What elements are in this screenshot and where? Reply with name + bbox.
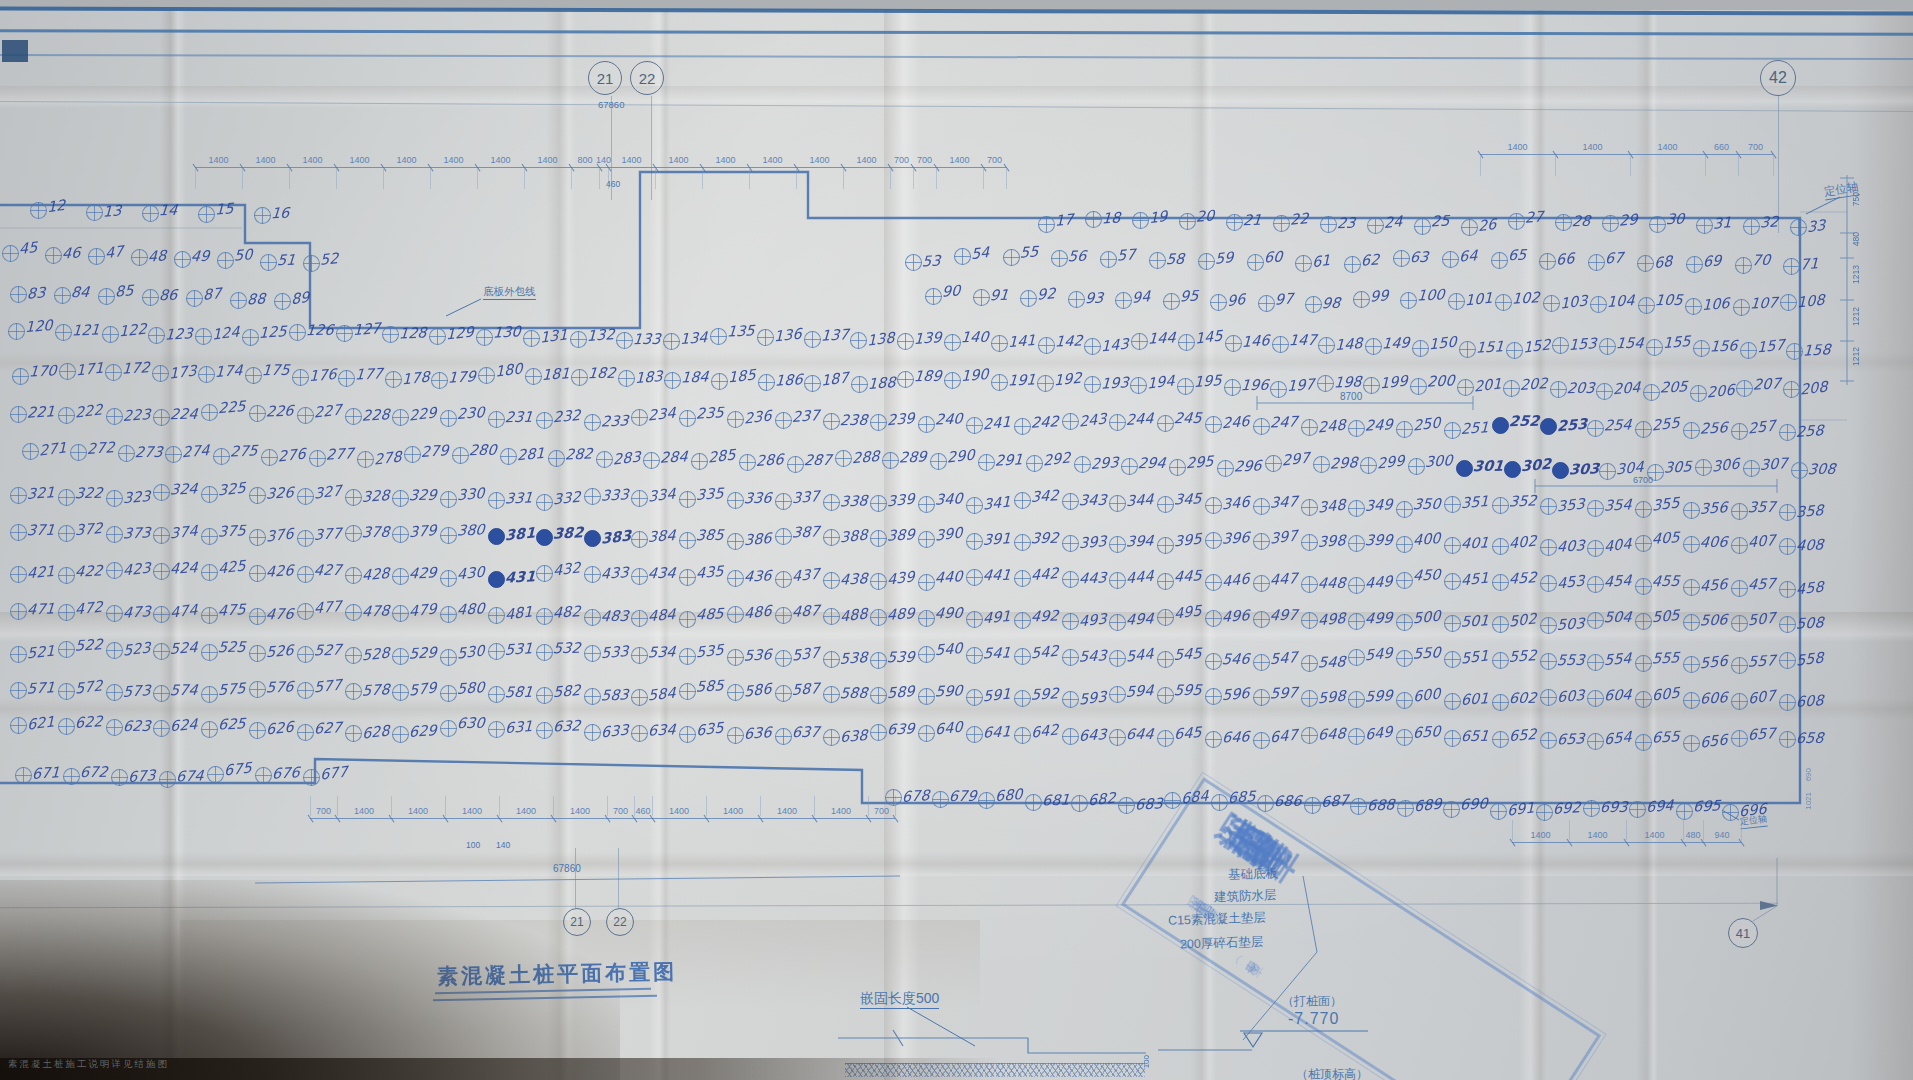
pile-number: 296: [1233, 457, 1262, 474]
pile-symbol: [297, 566, 314, 583]
pile-symbol: [1635, 578, 1652, 595]
pile-number: 331: [504, 490, 533, 507]
pile-symbol: [392, 726, 409, 743]
pile-number: 645: [1174, 724, 1202, 742]
pile-number: 494: [1126, 610, 1154, 628]
pile-symbol: [966, 569, 983, 586]
pile-number: 671: [32, 764, 60, 782]
pile-number: 332: [553, 488, 581, 507]
pile-symbol: [536, 529, 553, 546]
pile-number: 155: [1663, 333, 1691, 351]
pile-symbol: [584, 724, 601, 741]
pile-symbol: [345, 604, 362, 621]
pile-number: 158: [1803, 341, 1831, 359]
pile-symbol: [106, 526, 123, 543]
pile-symbol: [15, 767, 32, 784]
pile-symbol: [835, 450, 852, 467]
dim-value: 1400: [1582, 142, 1602, 152]
pile-number: 386: [744, 530, 772, 548]
dim-value: 940: [1714, 830, 1729, 840]
sub-dim-140: 140: [496, 840, 510, 850]
pile-level-value: -7.770: [1288, 1010, 1339, 1028]
pile-symbol: [1635, 421, 1652, 438]
pile-number: 601: [1461, 690, 1489, 708]
pile-symbol: [1074, 456, 1091, 473]
pile-number: 434: [648, 564, 677, 581]
pile-symbol: [1253, 575, 1270, 592]
pile-symbol: [201, 528, 218, 545]
pile-number: 335: [696, 485, 724, 503]
pile-number: 247: [1269, 413, 1298, 430]
pile-number: 71: [1800, 255, 1819, 273]
pile-number: 96: [1227, 291, 1246, 309]
pile-number: 154: [1615, 335, 1644, 352]
pile-number: 384: [648, 527, 676, 545]
pile-number: 129: [446, 323, 474, 342]
pile-number: 549: [1365, 645, 1393, 664]
dim-value: 480: [1685, 830, 1700, 840]
pile-number: 289: [899, 448, 928, 465]
layer-note-4: 200厚碎石垫层: [1180, 934, 1264, 954]
pile-number: 229: [409, 404, 437, 423]
pile-number: 375: [218, 522, 246, 540]
pile-number: 17: [1055, 211, 1073, 229]
pile-number: 640: [935, 718, 963, 737]
sub-dim-100: 100: [466, 840, 480, 850]
pile-number: 232: [553, 407, 581, 425]
pile-number: 127: [353, 320, 381, 338]
pile-symbol: [392, 684, 409, 701]
pile-number: 495: [1174, 602, 1202, 621]
layer-note-3: C15素混凝土垫层: [1168, 909, 1266, 929]
pile-symbol: [1779, 652, 1796, 669]
pile-number: 248: [1318, 416, 1346, 435]
pile-symbol: [70, 444, 87, 461]
pile-number: 171: [76, 359, 104, 378]
pile-number: 148: [1335, 335, 1363, 353]
axis-bubble-21: 21: [588, 61, 622, 95]
pile-symbol: [58, 567, 75, 584]
pile-number: 673: [128, 767, 156, 785]
pile-symbol: [1205, 610, 1222, 627]
pile-number: 634: [648, 721, 676, 739]
pile-number: 226: [265, 403, 294, 420]
anchor-length-note: 嵌固长度500: [860, 990, 939, 1009]
pile-symbol: [536, 687, 553, 704]
dim-value: 1400: [570, 806, 590, 816]
pile-number: 181: [541, 365, 569, 383]
pile-number: 126: [305, 322, 334, 339]
pile-symbol: [289, 324, 306, 341]
pile-number: 683: [1134, 795, 1162, 813]
pile-number: 526: [266, 641, 294, 659]
pile-number: 302: [1521, 455, 1551, 474]
pile-symbol: [525, 368, 542, 385]
pile-symbol: [105, 364, 122, 381]
pile-symbol: [1444, 615, 1461, 632]
pile-number: 692: [1553, 799, 1581, 817]
pile-number: 227: [314, 401, 342, 420]
pile-symbol: [1448, 293, 1465, 310]
dim-value: 1400: [856, 155, 876, 165]
pile-number: 635: [696, 719, 724, 738]
pile-number: 357: [1747, 499, 1776, 516]
pile-number: 233: [600, 412, 629, 429]
pile-number: 587: [792, 680, 820, 698]
pile-number: 471: [26, 601, 55, 618]
pile-number: 54: [971, 244, 990, 262]
pile-number: 681: [1041, 791, 1070, 808]
pile-number: 26: [1478, 215, 1497, 233]
pile-symbol: [1638, 297, 1655, 314]
pile-symbol: [1583, 800, 1600, 817]
pile-symbol: [58, 525, 75, 542]
pile-number: 90: [942, 283, 961, 300]
pile-number: 352: [1508, 493, 1537, 510]
pile-symbol: [1353, 291, 1370, 308]
pile-number: 581: [504, 683, 533, 700]
pile-number: 107: [1749, 295, 1778, 312]
pile-symbol: [1731, 615, 1748, 632]
pile-number: 539: [887, 648, 916, 665]
pile-symbol: [1683, 502, 1700, 519]
pile-symbol: [1414, 218, 1431, 235]
pile-number: 189: [914, 368, 943, 385]
pile-symbol: [1683, 692, 1700, 709]
pile-number: 195: [1194, 372, 1222, 390]
dim-ext-line: [524, 169, 525, 189]
pile-symbol: [1062, 571, 1079, 588]
pile-number: 87: [203, 285, 221, 303]
pile-symbol: [1731, 423, 1748, 440]
pile-number: 524: [170, 639, 198, 657]
pile-number: 389: [887, 527, 915, 545]
pile-symbol: [102, 326, 119, 343]
pile-number: 185: [728, 366, 756, 385]
pile-number: 491: [983, 608, 1011, 626]
pile-number: 66: [1556, 250, 1574, 268]
pile-number: 557: [1747, 653, 1775, 671]
pile-number: 657: [1748, 725, 1776, 743]
pile-number: 385: [695, 527, 724, 544]
pile-number: 12: [47, 197, 66, 215]
pile-symbol: [1062, 691, 1079, 708]
dim-8700-label: 8700: [1340, 391, 1362, 402]
pile-number: 101: [1465, 290, 1493, 309]
pile-symbol: [727, 492, 744, 509]
pile-number: 646: [1221, 728, 1250, 745]
pile-symbol: [1444, 693, 1461, 710]
pile-number: 574: [170, 682, 199, 699]
pile-symbol: [1014, 534, 1031, 551]
pile-number: 231: [504, 409, 533, 426]
pile-symbol: [153, 643, 170, 660]
pile-symbol: [1457, 379, 1474, 396]
pile-number: 288: [852, 448, 880, 466]
pile-number: 594: [1126, 682, 1154, 700]
pile-number: 402: [1509, 533, 1537, 552]
pile-symbol: [1363, 377, 1380, 394]
pile-symbol: [106, 684, 123, 701]
pile-symbol: [1736, 380, 1753, 397]
pile-number: 224: [170, 406, 199, 423]
pile-number: 290: [947, 446, 975, 465]
pile-symbol: [1131, 333, 1148, 350]
pile-number: 687: [1320, 792, 1348, 810]
pile-symbol: [1779, 504, 1796, 521]
pile-symbol: [596, 451, 613, 468]
pile-symbol: [10, 406, 27, 423]
pile-symbol: [918, 725, 935, 742]
pile-symbol: [679, 491, 696, 508]
pile-number: 234: [648, 404, 676, 423]
pile-number: 249: [1365, 416, 1393, 434]
pile-number: 146: [1242, 332, 1270, 350]
pile-number: 422: [74, 563, 103, 580]
pile-number: 648: [1317, 725, 1345, 743]
pile-number: 552: [1509, 647, 1537, 665]
pile-number: 88: [247, 290, 266, 307]
pile-number: 600: [1413, 685, 1441, 704]
dim-value-vertical: 1212: [1851, 307, 1861, 326]
pile-symbol: [118, 445, 135, 462]
pile-symbol: [631, 409, 648, 426]
pile-number: 251: [1461, 419, 1489, 437]
dim-value-vertical: 1212: [1851, 347, 1861, 366]
pile-number: 128: [399, 325, 428, 342]
pile-symbol: [1683, 614, 1700, 631]
pile-number: 157: [1757, 336, 1785, 355]
pile-number: 637: [791, 723, 820, 740]
pile-symbol: [1272, 336, 1289, 353]
pile-number: 592: [1030, 686, 1058, 704]
pile-number: 340: [935, 491, 963, 509]
pile-number: 685: [1227, 788, 1255, 806]
pile-symbol: [1779, 694, 1796, 711]
pile-symbol: [1014, 612, 1031, 629]
pile-number: 490: [934, 605, 963, 622]
pile-number: 532: [552, 640, 581, 657]
pile-symbol: [1301, 690, 1318, 707]
pile-number: 280: [468, 442, 497, 459]
pile-number: 436: [743, 567, 772, 584]
dim-value: 1400: [302, 155, 322, 165]
pile-symbol: [385, 371, 402, 388]
pile-number: 675: [224, 759, 252, 778]
pile-number: 145: [1195, 327, 1223, 346]
dim-ext-line: [796, 169, 797, 189]
dim-value: 1400: [516, 806, 536, 816]
pile-number: 186: [774, 371, 802, 389]
pile-number: 180: [495, 360, 523, 379]
pile-number: 603: [1557, 686, 1585, 704]
pile-symbol: [978, 454, 995, 471]
pile-symbol: [1779, 731, 1796, 748]
pile-number: 501: [1461, 612, 1489, 630]
pile-number: 529: [409, 644, 437, 662]
dim-value-vertical: 690: [1804, 768, 1813, 781]
pile-symbol: [1540, 732, 1557, 749]
pile-symbol: [198, 206, 215, 223]
pile-symbol: [1038, 337, 1055, 354]
pile-number: 324: [170, 481, 199, 498]
pile-number: 536: [744, 646, 772, 664]
pile-number: 405: [1652, 529, 1680, 547]
pile-number: 508: [1795, 614, 1823, 632]
pile-number: 642: [1031, 721, 1059, 740]
pile-number: 686: [1273, 793, 1302, 810]
pile-symbol: [930, 453, 947, 470]
dim-value: 700: [894, 155, 909, 165]
pile-number: 258: [1795, 422, 1823, 440]
pile-symbol: [1014, 727, 1031, 744]
pile-number: 381: [505, 524, 535, 543]
pile-symbol: [1367, 217, 1384, 234]
pile-number: 178: [402, 368, 430, 387]
pile-symbol: [1635, 501, 1652, 518]
axis-bubble-21: 21: [563, 908, 591, 936]
dim-value: 1400: [777, 806, 797, 816]
pile-symbol: [1596, 383, 1613, 400]
dim-value: 1400: [1507, 142, 1527, 152]
pile-symbol: [1068, 291, 1085, 308]
pile-number: 623: [122, 718, 151, 735]
pile-number: 550: [1413, 645, 1441, 663]
pile-number: 108: [1797, 292, 1825, 311]
pile-symbol: [488, 528, 505, 545]
pile-number: 486: [744, 603, 772, 622]
pile-symbol: [213, 448, 230, 465]
drawing-title: 素混凝土桩平面布置图: [437, 957, 678, 990]
pile-number: 279: [421, 442, 449, 460]
dim-ext-line: [337, 796, 338, 816]
pile-symbol: [1014, 418, 1031, 435]
pile-symbol: [345, 725, 362, 742]
pile-symbol: [345, 567, 362, 584]
pile-symbol: [1683, 579, 1700, 596]
pile-symbol: [727, 411, 744, 428]
pile-number: 472: [75, 599, 103, 618]
pile-symbol: [260, 254, 277, 271]
pile-number: 92: [1037, 285, 1056, 303]
pile-number: 680: [995, 786, 1023, 804]
pile-symbol: [63, 768, 80, 785]
pile-number: 421: [27, 563, 55, 581]
pile-symbol: [1540, 539, 1557, 556]
pile-symbol: [58, 407, 75, 424]
pile-symbol: [823, 608, 840, 625]
pile-symbol: [1253, 732, 1270, 749]
dim-6700-label: 6700: [1633, 475, 1653, 485]
pile-symbol: [1132, 212, 1149, 229]
pile-number: 200: [1427, 372, 1455, 390]
pile-symbol: [1217, 460, 1234, 477]
pile-number: 18: [1102, 209, 1121, 226]
pile-symbol: [1348, 728, 1365, 745]
pile-symbol: [1683, 735, 1700, 752]
pile-symbol: [106, 642, 123, 659]
pile-symbol: [1179, 213, 1196, 230]
pile-symbol: [991, 374, 1008, 391]
pile-symbol: [59, 363, 76, 380]
dim-ext-line: [1738, 156, 1739, 176]
pile-symbol: [570, 331, 587, 348]
pile-symbol: [1258, 295, 1275, 312]
pile-number: 572: [75, 677, 103, 696]
pile-symbol: [536, 494, 553, 511]
dim-ext-line: [477, 169, 478, 189]
pile-number: 106: [1702, 295, 1730, 313]
section-dim-100: 100: [1142, 1055, 1151, 1068]
pile-number: 582: [553, 681, 581, 699]
pile-symbol: [823, 572, 840, 589]
pile-symbol: [1037, 375, 1054, 392]
pile-number: 599: [1365, 687, 1393, 705]
pile-number: 198: [1333, 374, 1362, 391]
pile-symbol: [584, 414, 601, 431]
pile-number: 193: [1100, 374, 1128, 392]
pile-number: 287: [803, 451, 832, 468]
pile-number: 57: [1117, 246, 1136, 264]
pile-symbol: [10, 286, 27, 303]
pile-number: 477: [314, 598, 342, 616]
dim-ext-line: [890, 169, 891, 189]
pile-number: 68: [1654, 253, 1673, 271]
dim-value: 1400: [668, 155, 688, 165]
pile-symbol: [1786, 343, 1803, 360]
pile-symbol: [1149, 252, 1166, 269]
pile-symbol: [584, 530, 601, 547]
pile-number: 391: [983, 530, 1011, 548]
axis-bubble-42: 42: [1760, 60, 1796, 96]
pile-number: 506: [1699, 611, 1728, 628]
pile-symbol: [1643, 384, 1660, 401]
pile-number: 236: [744, 407, 772, 426]
pile-number: 142: [1054, 332, 1083, 349]
pile-number: 507: [1748, 609, 1776, 628]
pile-number: 206: [1707, 381, 1735, 400]
pile-number: 394: [1126, 532, 1155, 549]
pile-symbol: [274, 293, 291, 310]
pile-number: 580: [457, 679, 485, 697]
pile-symbol: [631, 725, 648, 742]
pile-symbol: [1178, 334, 1195, 351]
pile-number: 354: [1604, 496, 1632, 514]
pile-number: 144: [1148, 329, 1176, 347]
pile-number: 478: [361, 603, 390, 620]
pile-symbol: [1205, 688, 1222, 705]
dim-value: 1400: [1644, 830, 1664, 840]
pile-number: 23: [1336, 214, 1356, 231]
pile-symbol: [345, 489, 362, 506]
pile-symbol: [775, 493, 792, 510]
dim-ext-line: [289, 169, 290, 189]
pile-number: 183: [635, 368, 663, 386]
dim-ext-line: [936, 169, 937, 189]
pile-number: 174: [215, 362, 243, 380]
pile-number: 455: [1651, 572, 1680, 589]
pile-number: 277: [325, 445, 353, 463]
pile-number: 131: [540, 326, 568, 345]
pile-symbol: [1731, 537, 1748, 554]
pile-symbol: [823, 651, 840, 668]
pile-symbol: [1304, 797, 1321, 814]
pile-number: 330: [457, 485, 485, 503]
pile-number: 347: [1269, 493, 1297, 511]
pile-level-note2: （桩顶标高）: [1296, 1066, 1368, 1080]
pile-symbol: [303, 255, 320, 272]
pile-number: 19: [1149, 207, 1168, 225]
